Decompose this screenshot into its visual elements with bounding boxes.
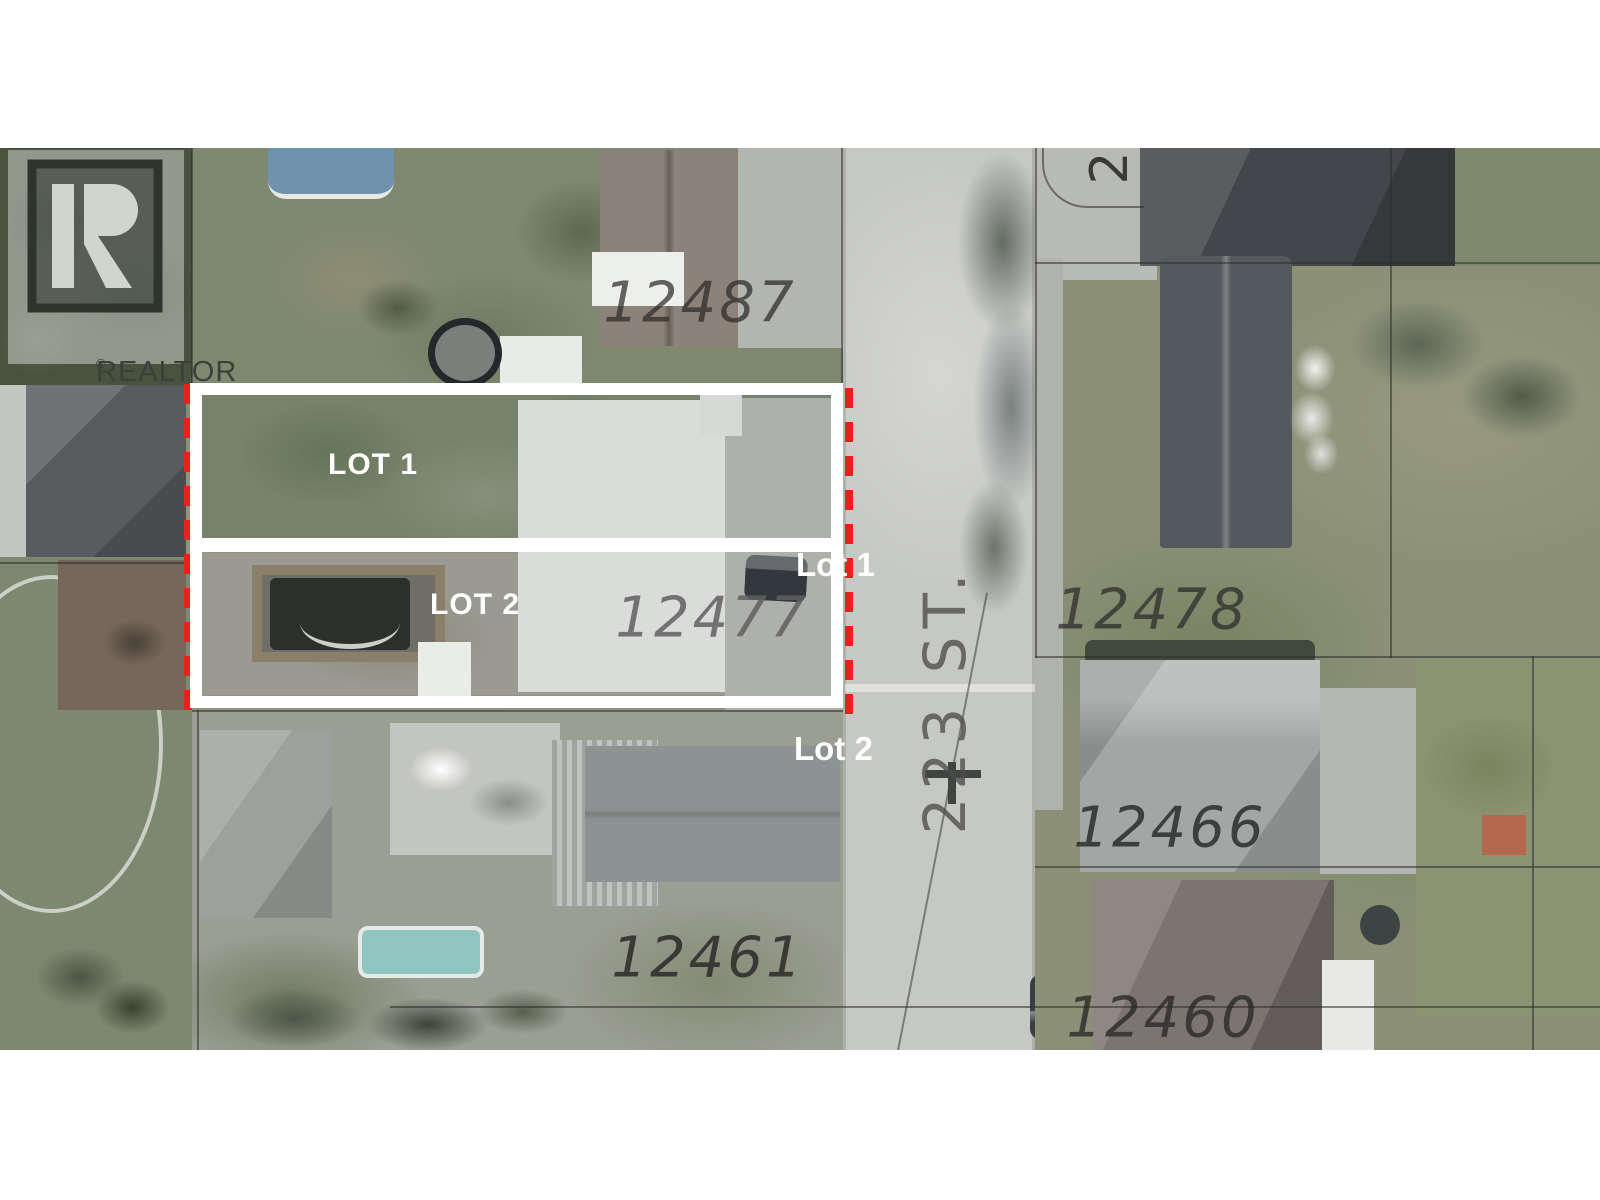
tree-cluster — [952, 148, 1036, 618]
address-label-12461: 12461 — [611, 926, 804, 991]
terrain-patch — [390, 723, 560, 855]
aerial-photo: 12487 12478 12477 12466 12461 12460 223 … — [0, 148, 1600, 1050]
house-roof — [200, 730, 332, 918]
parcel-line — [841, 148, 843, 387]
outbuilding-roof — [1160, 256, 1292, 548]
listing-image: 12487 12478 12477 12466 12461 12460 223 … — [0, 0, 1600, 1200]
realtor-r-block-icon — [8, 150, 184, 320]
lot1-outside-label: Lot 1 — [796, 546, 875, 584]
house-roof — [26, 385, 186, 557]
deck — [1322, 960, 1374, 1050]
house-roof — [1140, 148, 1455, 266]
driveway — [1320, 688, 1416, 874]
registered-mark: ® — [96, 356, 107, 371]
address-label-12478: 12478 — [1055, 578, 1248, 643]
parcel-line — [1035, 866, 1600, 868]
terrain-patch — [1035, 258, 1063, 810]
shed — [1482, 815, 1526, 855]
parcel-line — [1390, 148, 1392, 658]
lot1-label: LOT 1 — [328, 448, 418, 482]
address-label-12487: 12487 — [603, 271, 796, 336]
realtor-wordmark: REALTOR — [96, 356, 237, 389]
deck — [58, 560, 186, 710]
realtor-logo: REALTOR® — [8, 150, 184, 364]
parcel-line — [197, 710, 199, 1050]
lot-divider-line — [190, 538, 843, 552]
pool — [268, 148, 394, 199]
parcel-line — [1035, 262, 1600, 264]
parcel-line — [0, 562, 192, 564]
lot2-label: LOT 2 — [430, 588, 520, 622]
address-label-12466: 12466 — [1073, 796, 1266, 861]
shed — [500, 336, 582, 384]
cross-street-number: 2 — [1080, 151, 1140, 184]
pool — [1360, 905, 1400, 945]
parcel-line — [1035, 656, 1600, 658]
parcel-line — [191, 148, 193, 387]
parcel-line — [1532, 656, 1534, 1050]
pool — [358, 926, 484, 978]
parcel-line — [1035, 148, 1037, 658]
lawn — [1455, 148, 1600, 266]
parcel-line — [390, 1006, 1600, 1008]
parcel-line — [192, 710, 843, 712]
address-label-12460: 12460 — [1066, 986, 1259, 1051]
terrain-patch — [1283, 333, 1347, 475]
tree-cluster — [1340, 260, 1600, 470]
tree-cluster — [200, 986, 580, 1050]
street-name-label: 223 ST. — [911, 566, 979, 835]
terrain-patch — [20, 937, 170, 1037]
lot2-outside-label: Lot 2 — [794, 730, 873, 768]
trampoline — [428, 318, 502, 388]
